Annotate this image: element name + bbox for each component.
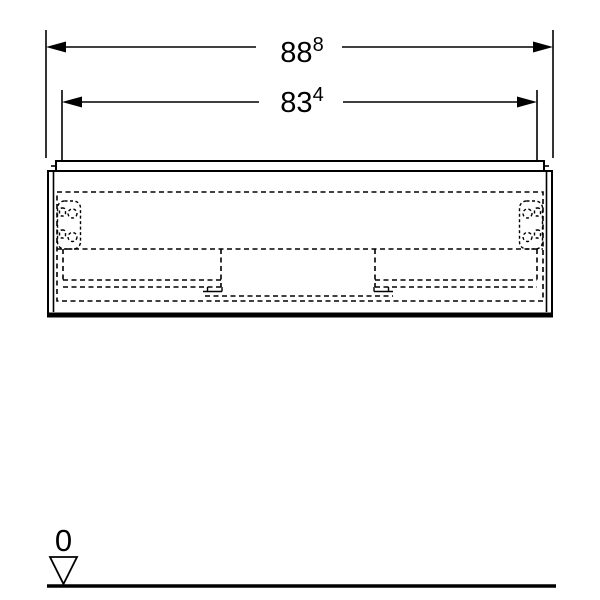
cabinet-top-panel xyxy=(56,161,544,171)
arrow-left-icon xyxy=(46,42,66,53)
technical-drawing-page: 888 834 xyxy=(0,0,600,600)
arrow-left-icon xyxy=(62,97,82,108)
vanity-cabinet-drawing: 888 834 xyxy=(0,0,600,600)
datum-label: 0 xyxy=(55,523,72,558)
arrow-right-icon xyxy=(517,97,537,108)
arrow-right-icon xyxy=(533,42,553,53)
dimension-label-outer-width: 888 xyxy=(280,34,323,69)
datum-level-icon xyxy=(50,557,77,584)
floor-datum: 0 xyxy=(47,523,556,586)
vanity-cabinet-front-view xyxy=(47,161,553,315)
dimension-label-inner-width: 834 xyxy=(280,84,323,119)
